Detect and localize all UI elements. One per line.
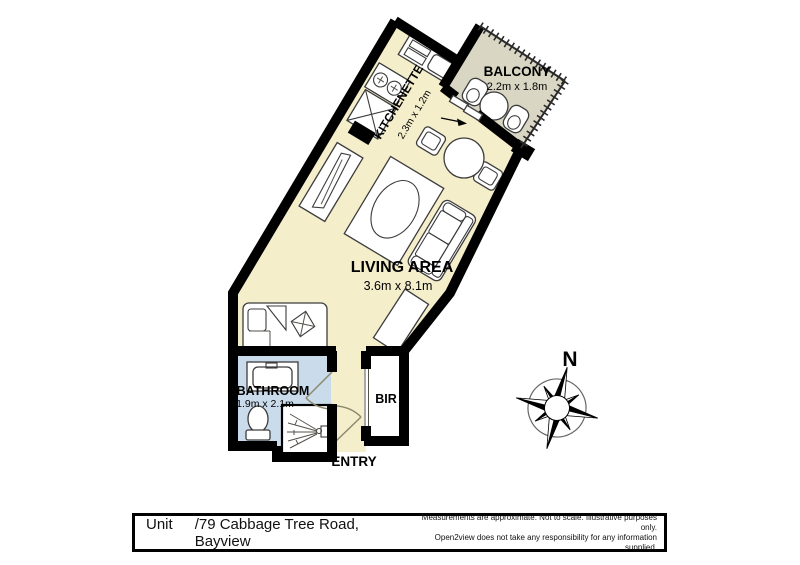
bathroom-label: BATHROOM — [237, 384, 310, 398]
address-block: Unit /79 Cabbage Tree Road, Bayview — [135, 516, 409, 550]
north-label: N — [562, 348, 577, 371]
disclaimer-line-2: Open2view does not take any responsibili… — [409, 533, 657, 553]
address-text: /79 Cabbage Tree Road, Bayview — [195, 516, 410, 550]
floorplan-drawing: BALCONY 2.2m x 1.8m KITCHENETTE 2.3m x 1… — [0, 0, 800, 565]
bed — [243, 303, 327, 352]
disclaimer-line-1: Measurements are approximate. Not to sca… — [409, 513, 657, 533]
dining-table — [444, 138, 484, 178]
balcony-dims: 2.2m x 1.8m — [487, 81, 548, 93]
floorplan-page: BALCONY 2.2m x 1.8m KITCHENETTE 2.3m x 1… — [0, 0, 800, 565]
bir-label: BIR — [375, 392, 397, 406]
shower — [282, 405, 331, 456]
balcony-label: BALCONY — [484, 64, 551, 79]
title-bar: Unit /79 Cabbage Tree Road, Bayview Meas… — [132, 513, 667, 552]
compass-rose-icon: N — [506, 348, 608, 459]
toilet-base — [246, 430, 270, 440]
living-area-dims: 3.6m x 8.1m — [364, 279, 433, 293]
bathroom-dims: 1.9m x 2.1m — [236, 398, 294, 410]
disclaimer: Measurements are approximate. Not to sca… — [409, 513, 657, 553]
living-area-label: LIVING AREA — [351, 259, 454, 276]
unit-label: Unit — [146, 516, 173, 533]
entry-label: ENTRY — [331, 454, 376, 469]
